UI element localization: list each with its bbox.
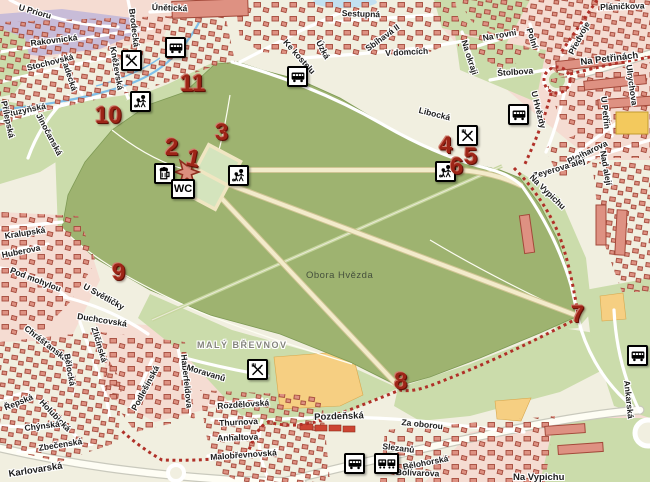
district-label: MALÝ BŘEVNOV xyxy=(197,341,288,350)
bus-stop-icon[interactable] xyxy=(508,104,529,125)
street-label: V domcích xyxy=(385,47,428,58)
street-label: Bolívarova xyxy=(396,468,440,478)
route-marker-10[interactable]: 10 xyxy=(95,104,122,128)
bus-stop-icon[interactable] xyxy=(287,66,308,87)
playground-icon[interactable] xyxy=(130,91,151,112)
street-label: Sestupná xyxy=(342,9,381,19)
route-marker-8[interactable]: 8 xyxy=(394,370,407,394)
route-marker-9[interactable]: 9 xyxy=(112,261,125,285)
street-label: Pláničkova xyxy=(600,1,645,11)
park-name-label: Obora Hvězda xyxy=(306,271,373,281)
restaurant-icon[interactable] xyxy=(121,50,142,71)
tram-stop-icon[interactable] xyxy=(374,453,399,474)
route-marker-11[interactable]: 11 xyxy=(180,72,205,96)
map-canvas[interactable]: U Prioru Rakovnická Únětická Brodecká Kn… xyxy=(0,0,650,482)
bus-stop-icon[interactable] xyxy=(627,345,648,366)
street-label: Únětická xyxy=(152,3,188,13)
restaurant-icon[interactable] xyxy=(247,359,268,380)
street-label: Na Vypichu xyxy=(513,473,564,482)
route-marker-5[interactable]: 5 xyxy=(464,145,477,169)
street-label: U Petřin xyxy=(600,96,612,129)
wc-label: WC xyxy=(174,183,192,195)
playground-icon[interactable] xyxy=(228,165,249,186)
route-marker-6[interactable]: 6 xyxy=(450,155,463,179)
street-label: Thurnova xyxy=(219,417,258,428)
route-marker-2[interactable]: 2 xyxy=(165,136,178,160)
yellow-building xyxy=(616,112,648,134)
street-label: Štolbova xyxy=(497,66,533,77)
street-label: Pozdeňská xyxy=(314,411,364,422)
route-marker-3[interactable]: 3 xyxy=(215,121,228,145)
map-graphics xyxy=(0,0,650,482)
bus-stop-icon[interactable] xyxy=(344,453,365,474)
bus-stop-icon[interactable] xyxy=(165,37,186,58)
toilets-wc-icon[interactable]: WC xyxy=(171,179,195,199)
route-marker-7[interactable]: 7 xyxy=(571,303,584,327)
street-label: Anhaltova xyxy=(217,433,258,443)
